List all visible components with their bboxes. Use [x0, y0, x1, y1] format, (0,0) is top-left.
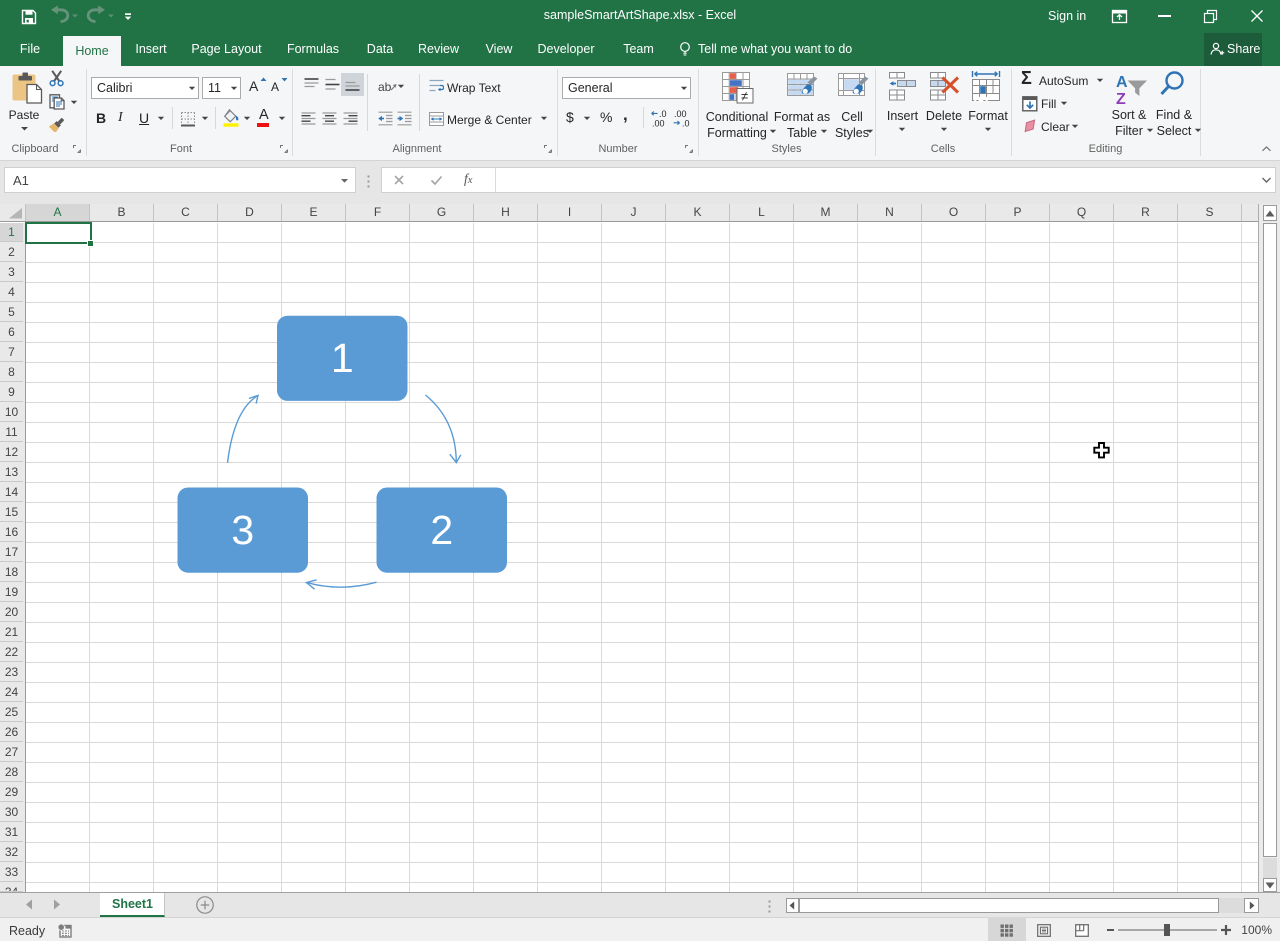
svg-text:.00: .00 — [652, 119, 665, 128]
svg-text:.0: .0 — [682, 119, 690, 128]
svg-text:ab: ab — [378, 80, 392, 94]
svg-text:A: A — [1116, 74, 1128, 91]
svg-text:Z: Z — [1116, 91, 1126, 104]
svg-text:2: 2 — [430, 507, 453, 553]
svg-text:≠: ≠ — [741, 89, 748, 104]
svg-text:3: 3 — [231, 507, 254, 553]
svg-text:1: 1 — [331, 335, 354, 381]
